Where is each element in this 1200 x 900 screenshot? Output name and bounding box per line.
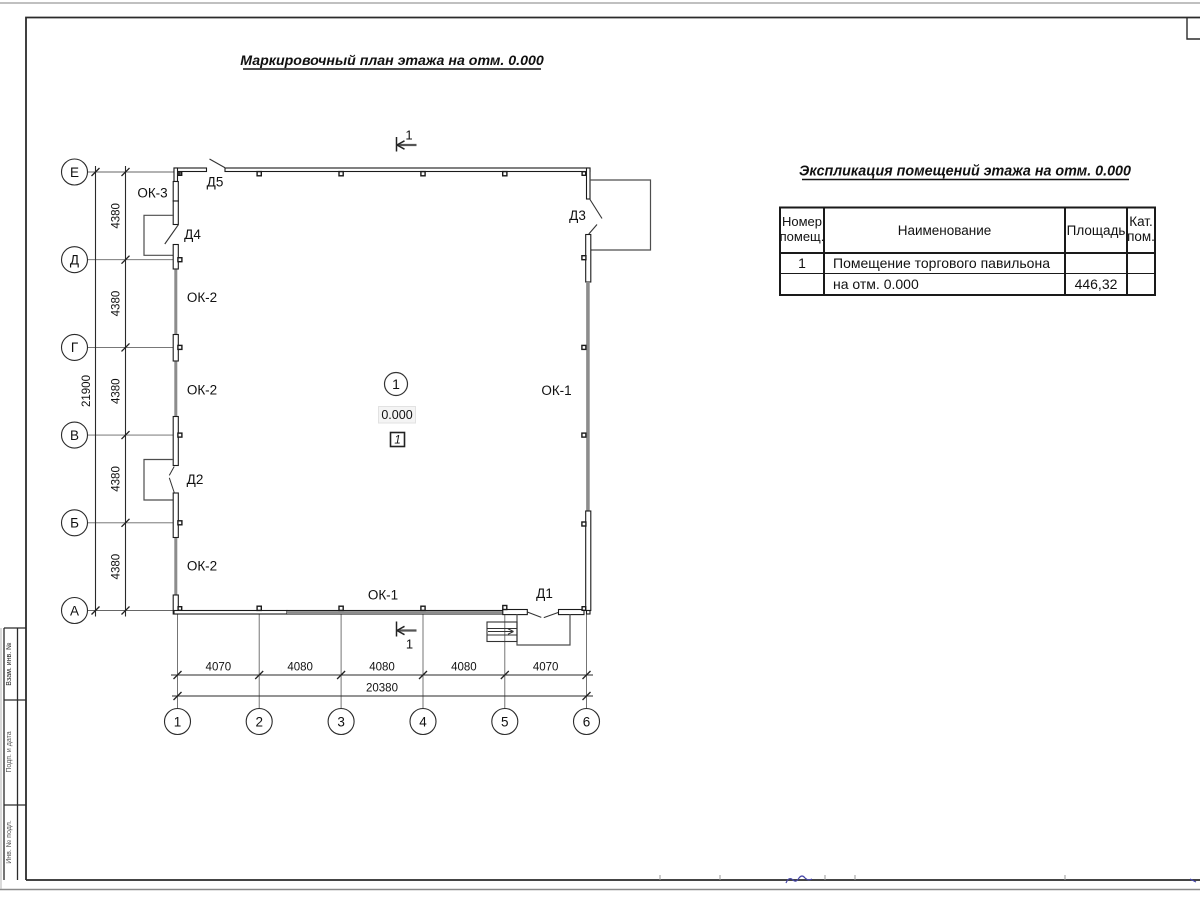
svg-text:Д5: Д5: [207, 175, 224, 190]
svg-text:0.000: 0.000: [381, 408, 412, 422]
svg-text:ОК-1: ОК-1: [368, 588, 398, 603]
svg-text:1: 1: [406, 637, 413, 652]
svg-text:1: 1: [405, 128, 412, 143]
svg-text:6: 6: [583, 714, 591, 729]
svg-text:1: 1: [392, 376, 400, 392]
svg-text:1: 1: [174, 714, 182, 729]
svg-text:Наименование: Наименование: [898, 223, 992, 238]
svg-text:1: 1: [394, 434, 400, 446]
svg-text:А: А: [70, 603, 79, 618]
svg-text:4380: 4380: [111, 291, 123, 317]
svg-text:Д2: Д2: [187, 472, 204, 487]
svg-text:Подп. и дата: Подп. и дата: [6, 731, 13, 772]
svg-text:Маркировочный план этажа на от: Маркировочный план этажа на отм. 0.000: [240, 53, 544, 69]
svg-text:4080: 4080: [287, 662, 313, 674]
svg-text:Д1: Д1: [536, 586, 553, 601]
svg-text:4380: 4380: [111, 378, 123, 404]
svg-text:2: 2: [255, 714, 263, 729]
svg-text:4380: 4380: [111, 203, 123, 229]
svg-text:ОК-2: ОК-2: [187, 559, 217, 574]
svg-text:Д4: Д4: [184, 227, 201, 242]
svg-text:Б: Б: [70, 516, 79, 531]
svg-text:3: 3: [337, 714, 345, 729]
svg-text:Инв. № подл.: Инв. № подл.: [6, 820, 13, 864]
svg-text:4380: 4380: [111, 554, 123, 580]
svg-text:4070: 4070: [206, 662, 232, 674]
svg-text:21900: 21900: [81, 375, 93, 407]
svg-text:Кат.: Кат.: [1129, 214, 1153, 229]
svg-text:20380: 20380: [366, 683, 398, 695]
svg-text:ОК-3: ОК-3: [137, 186, 167, 201]
svg-text:Номер: Номер: [782, 214, 822, 229]
svg-text:Помещение торгового павильона: Помещение торгового павильона: [833, 255, 1050, 271]
svg-text:4080: 4080: [451, 662, 477, 674]
svg-text:Е: Е: [70, 165, 79, 180]
svg-text:Площадь: Площадь: [1067, 223, 1126, 238]
svg-text:5: 5: [501, 714, 509, 729]
svg-text:Экспликация помещений этажа на: Экспликация помещений этажа на отм. 0.00…: [799, 164, 1131, 180]
svg-text:Д: Д: [70, 253, 79, 268]
svg-text:4: 4: [419, 714, 427, 729]
svg-text:В: В: [70, 428, 79, 443]
svg-text:4380: 4380: [111, 466, 123, 492]
svg-text:4080: 4080: [369, 662, 395, 674]
svg-text:на отм. 0.000: на отм. 0.000: [833, 276, 919, 292]
svg-text:Г: Г: [71, 340, 79, 355]
svg-text:Д3: Д3: [569, 208, 586, 223]
svg-text:446,32: 446,32: [1075, 276, 1118, 292]
svg-text:ОК-1: ОК-1: [541, 383, 571, 398]
svg-text:ОК-2: ОК-2: [187, 290, 217, 305]
svg-text:помещ.: помещ.: [780, 229, 825, 244]
svg-text:1: 1: [798, 255, 806, 271]
svg-text:Взам. инв. №: Взам. инв. №: [6, 642, 13, 685]
svg-text:пом.: пом.: [1127, 229, 1155, 244]
svg-text:ОК-2: ОК-2: [187, 383, 217, 398]
svg-text:4070: 4070: [533, 662, 559, 674]
